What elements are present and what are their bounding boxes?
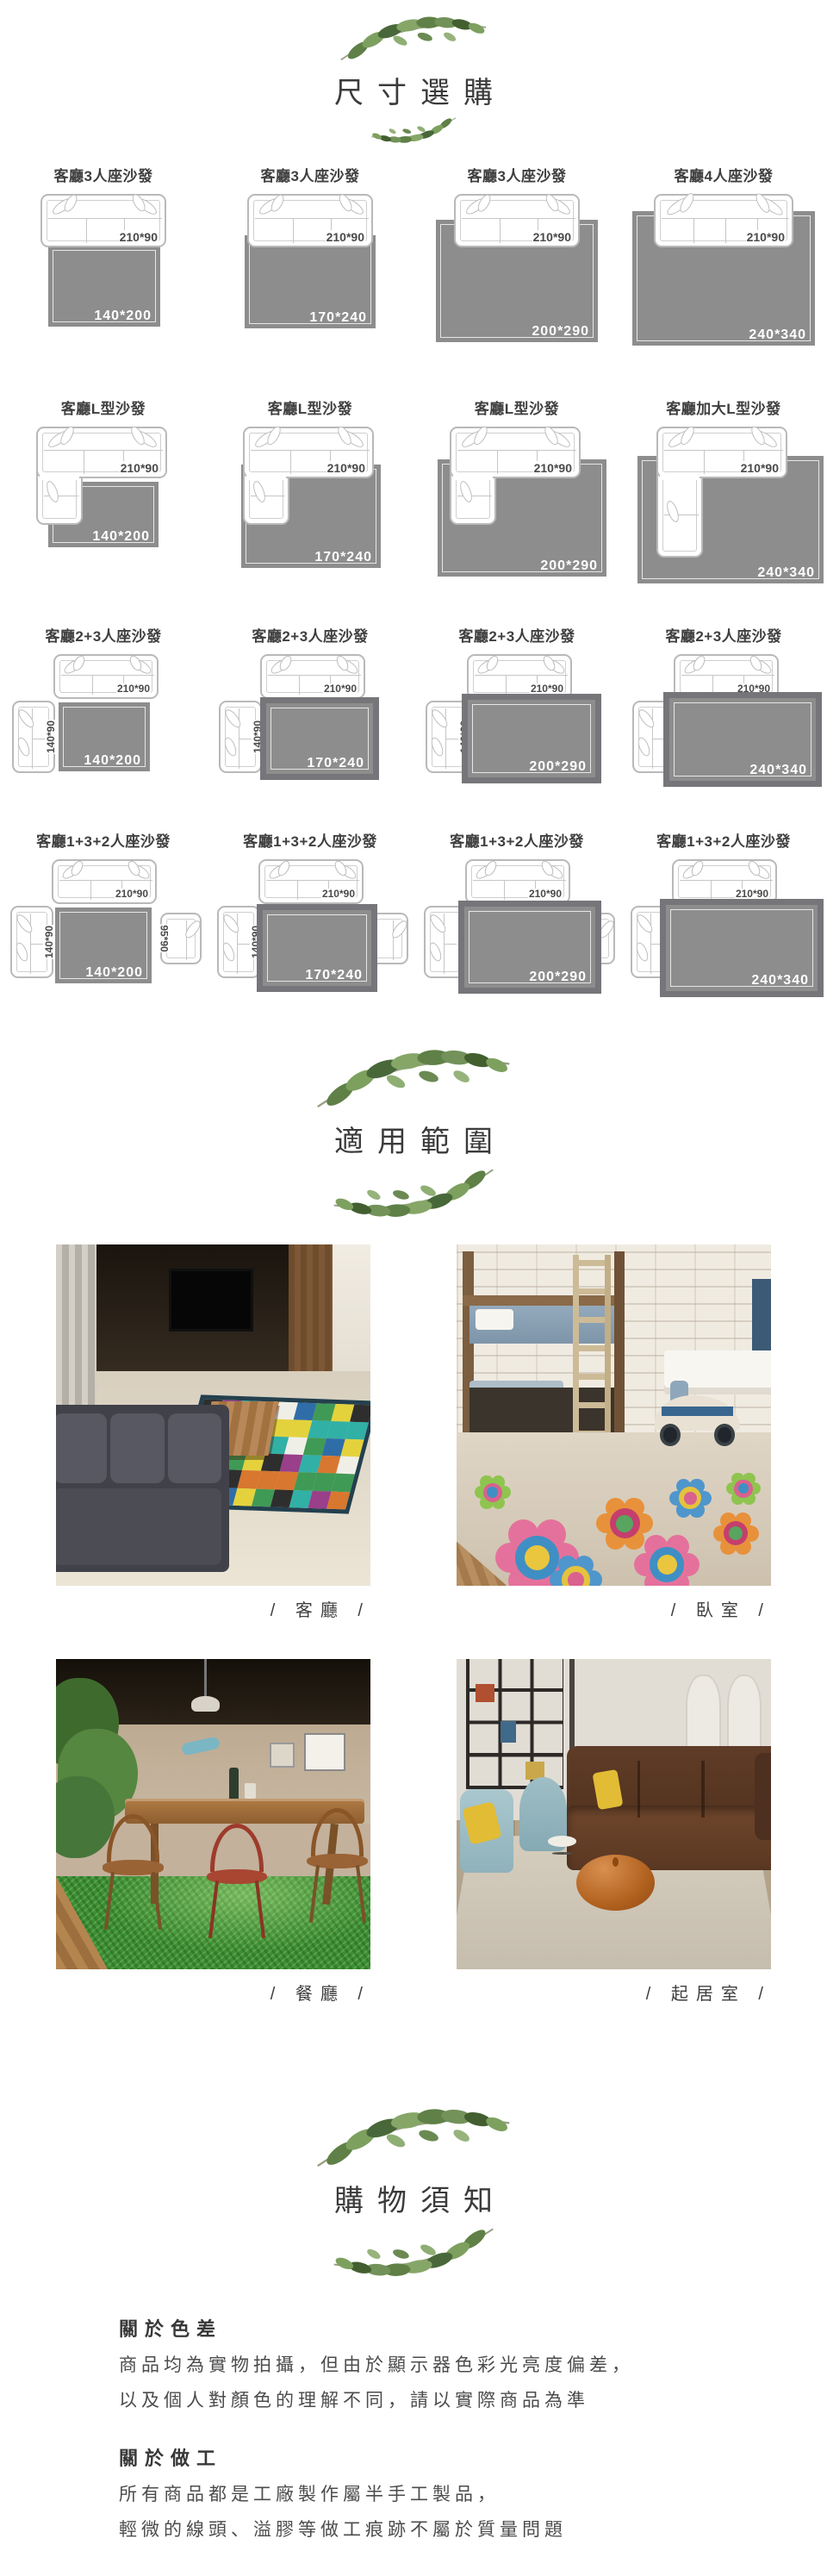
rug-size-label: 200*290 xyxy=(529,759,587,775)
photo-caption-living-room: / 客廳 / xyxy=(56,1596,370,1621)
diagram-canvas: 200*290210*90 xyxy=(413,427,620,587)
rug-size-label: 170*240 xyxy=(305,968,363,983)
sofa-top-view: 210*90 xyxy=(258,859,364,904)
size-diagram-cell: 客廳L型沙發170*240210*90 xyxy=(207,399,413,587)
sofa-top-view: 140*90 xyxy=(12,701,55,773)
rug-size-label: 240*340 xyxy=(751,973,809,989)
flower-motif xyxy=(714,1512,757,1555)
leaf-branch-icon xyxy=(311,1044,516,1114)
rug-top-view: 240*340 xyxy=(660,899,824,997)
photo-caption-dining-room: / 餐廳 / xyxy=(56,1980,370,2005)
sofa-size-label: 210*90 xyxy=(532,230,572,244)
leaf-branch-icon xyxy=(329,2223,498,2281)
rug-top-view: 240*340 xyxy=(663,692,822,787)
size-diagram-cell: 客廳2+3人座沙發200*290210*90140*90 xyxy=(413,627,620,789)
sofa-top-view: 210*90 xyxy=(654,194,793,247)
rug-size-label: 170*240 xyxy=(307,756,364,771)
lamp-cord xyxy=(204,1659,208,1700)
diagram-label: 客廳4人座沙發 xyxy=(620,166,827,187)
diagram-canvas: 170*240210*90 xyxy=(207,194,413,347)
flower-motif xyxy=(727,1472,760,1505)
photo-caption-bedroom: / 臥室 / xyxy=(457,1596,771,1621)
size-diagram-cell: 客廳1+3+2人座沙發170*240210*90140*9095*90 xyxy=(207,832,413,1001)
notice-line: 輕微的線頭、溢膠等做工痕跡不屬於質量問題 xyxy=(119,2513,749,2547)
rug-top-view: 200*290 xyxy=(458,901,601,994)
rug-top-view: 170*240 xyxy=(257,904,377,992)
size-diagram-cell: 客廳2+3人座沙發240*340210*90140*90 xyxy=(620,627,827,789)
notice-heading: 關於做工 xyxy=(119,2443,749,2471)
leaf-branch-icon xyxy=(336,12,491,65)
notice-section-title: 購物須知 xyxy=(320,2177,507,2219)
side-table xyxy=(548,1836,576,1847)
diagram-label: 客廳L型沙發 xyxy=(207,399,413,420)
sofa-top-view: 210*90 xyxy=(465,859,570,904)
sofa-size-label: 210*90 xyxy=(326,461,366,475)
sofa-size-label: 210*90 xyxy=(116,683,151,695)
diagram-label: 客廳2+3人座沙發 xyxy=(0,627,207,647)
rug-product-description-page: 尺寸選購 客廳3人座沙發140*200210*90客廳3人座沙發170*2402… xyxy=(0,0,827,2576)
rug-size-label: 200*290 xyxy=(540,558,598,574)
pouf-knot xyxy=(612,1857,619,1867)
usage-section-title: 適用範圍 xyxy=(320,1118,507,1160)
leaf-branch-icon xyxy=(369,115,458,146)
dining-room-photo xyxy=(56,1659,370,1969)
diagram-canvas: 140*200210*90140*90 xyxy=(0,654,207,789)
diagram-label: 客廳2+3人座沙發 xyxy=(207,627,413,647)
rug-size-label: 170*240 xyxy=(309,310,367,326)
usage-section-header: 適用範圍 xyxy=(0,1032,827,1222)
book xyxy=(501,1721,516,1743)
notice-heading: 關於色差 xyxy=(119,2314,749,2342)
rug-size-label: 200*290 xyxy=(532,324,589,340)
rug-size-label: 140*200 xyxy=(94,309,152,324)
diagram-canvas: 140*200210*90140*9095*90 xyxy=(0,859,207,1001)
sofa-top-view: 210*90 xyxy=(36,427,167,478)
size-diagram-cell: 客廳1+3+2人座沙發240*340210*90140*9095*90 xyxy=(620,832,827,1001)
diagram-label: 客廳2+3人座沙發 xyxy=(620,627,827,647)
diagram-canvas: 140*200210*90 xyxy=(0,427,207,587)
photo-cell-dining-room: / 餐廳 / xyxy=(56,1659,370,2018)
sofa-size-label: 95*90 xyxy=(159,924,171,952)
size-section-header: 尺寸選購 xyxy=(0,0,827,146)
rug-size-label: 140*200 xyxy=(85,965,143,981)
usage-photo-grid: / 客廳 / / 臥室 / xyxy=(0,1244,827,2018)
rug-size-label: 240*340 xyxy=(749,763,807,778)
glass xyxy=(245,1783,256,1799)
diagram-canvas: 170*240210*90 xyxy=(207,427,413,587)
diagram-label: 客廳L型沙發 xyxy=(0,399,207,420)
size-diagram-cell: 客廳1+3+2人座沙發200*290210*90140*9095*90 xyxy=(413,832,620,1001)
rug-top-view: 140*200 xyxy=(59,702,150,771)
bunk-bed-post xyxy=(614,1251,625,1456)
living-room-photo xyxy=(56,1244,370,1586)
leather-sofa xyxy=(567,1746,771,1870)
sofa-top-view: 210*90 xyxy=(247,194,373,247)
size-diagram-cell: 客廳2+3人座沙發140*200210*90140*90 xyxy=(0,627,207,789)
sofa-top-view: 210*90 xyxy=(467,654,572,699)
sofa-top-view: 210*90 xyxy=(672,859,777,904)
notice-line: 所有商品都是工廠製作屬半手工製品， xyxy=(119,2478,749,2511)
sofa-size-label: 210*90 xyxy=(533,461,573,475)
sofa-top-view: 210*90 xyxy=(450,427,581,478)
diagram-label: 客廳3人座沙發 xyxy=(413,166,620,187)
sofa-size-label: 210*90 xyxy=(326,230,365,244)
rug-size-label: 140*200 xyxy=(84,753,141,769)
size-diagram-cell: 客廳1+3+2人座沙發140*200210*90140*9095*90 xyxy=(0,832,207,1001)
tv-screen xyxy=(169,1269,252,1332)
size-diagram-cell: 客廳L型沙發140*200210*90 xyxy=(0,399,207,587)
rug-size-label: 240*340 xyxy=(749,327,806,343)
diagram-canvas: 170*240210*90140*9095*90 xyxy=(207,859,413,1001)
size-diagram-row: 客廳2+3人座沙發140*200210*90140*90客廳2+3人座沙發170… xyxy=(0,627,827,789)
bedroom-photo xyxy=(457,1244,771,1586)
rug-top-view: 170*240 xyxy=(260,697,379,780)
diagram-canvas: 200*290210*90140*90 xyxy=(413,654,620,789)
diagram-label: 客廳1+3+2人座沙發 xyxy=(620,832,827,852)
diagram-canvas: 170*240210*90140*90 xyxy=(207,654,413,789)
diagram-canvas: 240*340210*90140*9095*90 xyxy=(620,859,827,1001)
sofa-top-view: 210*90 xyxy=(656,427,787,478)
diagram-canvas: 240*340210*90140*90 xyxy=(620,654,827,789)
leaf-branch-icon xyxy=(311,2103,516,2174)
sofa-top-view: 95*90 xyxy=(160,913,202,964)
size-section-title: 尺寸選購 xyxy=(320,69,507,111)
notice-line: 以及個人對顏色的理解不同，請以實際商品為準 xyxy=(119,2384,749,2417)
diagram-canvas: 200*290210*90 xyxy=(413,194,620,347)
flower-motif xyxy=(636,1533,698,1586)
sofa-size-label: 140*90 xyxy=(43,925,55,959)
size-diagram-cell: 客廳3人座沙發170*240210*90 xyxy=(207,166,413,347)
sofa-top-view: 210*90 xyxy=(243,427,374,478)
diagram-label: 客廳1+3+2人座沙發 xyxy=(0,832,207,852)
rug-top-view: 170*240 xyxy=(245,235,376,328)
notice-line: 商品均為實物拍攝，但由於顯示器色彩光亮度偏差， xyxy=(119,2348,749,2382)
wall-picture xyxy=(304,1733,345,1770)
book xyxy=(476,1684,494,1703)
sofa-size-label: 210*90 xyxy=(740,461,780,475)
flower-motif xyxy=(476,1475,510,1510)
sofa-top-view: 210*90 xyxy=(260,654,365,699)
flower-motif xyxy=(551,1555,601,1586)
bottle xyxy=(229,1768,239,1799)
rug-size-label: 140*200 xyxy=(92,529,150,545)
rug-top-view: 140*200 xyxy=(55,908,152,983)
size-diagram-cell: 客廳加大L型沙發240*340210*90 xyxy=(620,399,827,587)
sofa-top-view: 210*90 xyxy=(454,194,580,247)
lamp-shade xyxy=(191,1696,220,1712)
size-diagram-row: 客廳L型沙發140*200210*90客廳L型沙發170*240210*90客廳… xyxy=(0,399,827,587)
size-diagrams-grid: 客廳3人座沙發140*200210*90客廳3人座沙發170*240210*90… xyxy=(0,166,827,1001)
size-diagram-cell: 客廳4人座沙發240*340210*90 xyxy=(620,166,827,347)
diagram-label: 客廳1+3+2人座沙發 xyxy=(413,832,620,852)
diagram-label: 客廳3人座沙發 xyxy=(0,166,207,187)
sofa-size-label: 210*90 xyxy=(321,889,356,901)
toy-car xyxy=(655,1381,740,1445)
size-diagram-cell: 客廳2+3人座沙發170*240210*90140*90 xyxy=(207,627,413,789)
sofa-size-label: 210*90 xyxy=(323,683,358,695)
size-diagram-cell: 客廳L型沙發200*290210*90 xyxy=(413,399,620,587)
sofa-size-label: 210*90 xyxy=(528,889,563,901)
leaf-branch-icon xyxy=(329,1163,498,1222)
sofa-top-view: 140*90 xyxy=(10,906,53,978)
flower-rug xyxy=(457,1432,771,1586)
notice-body: 關於色差商品均為實物拍攝，但由於顯示器色彩光亮度偏差，以及個人對顏色的理解不同，… xyxy=(0,2283,827,2576)
photo-caption-sitting-room: / 起居室 / xyxy=(457,1980,771,2005)
rug-size-label: 200*290 xyxy=(529,970,587,985)
red-chair xyxy=(204,1824,270,1938)
pillow xyxy=(476,1309,513,1330)
wood-panel xyxy=(289,1244,333,1371)
wooden-chair xyxy=(100,1814,166,1929)
size-diagram-row: 客廳3人座沙發140*200210*90客廳3人座沙發170*240210*90… xyxy=(0,166,827,347)
diagram-label: 客廳3人座沙發 xyxy=(207,166,413,187)
sofa-size-label: 210*90 xyxy=(746,230,786,244)
flower-motif xyxy=(670,1478,710,1518)
sofa-top-view: 210*90 xyxy=(40,194,166,247)
diagram-label: 客廳加大L型沙發 xyxy=(620,399,827,420)
wooden-chair xyxy=(304,1808,370,1923)
sofa-top-view: 140*90 xyxy=(217,906,260,978)
rug-size-label: 170*240 xyxy=(314,550,372,565)
diagram-canvas: 240*340210*90 xyxy=(620,427,827,587)
sofa-size-label: 210*90 xyxy=(120,461,159,475)
size-diagram-row: 客廳1+3+2人座沙發140*200210*90140*9095*90客廳1+3… xyxy=(0,832,827,1001)
photo-cell-bedroom: / 臥室 / xyxy=(457,1244,771,1635)
diagram-label: 客廳1+3+2人座沙發 xyxy=(207,832,413,852)
sofa-size-label: 140*90 xyxy=(45,720,57,754)
gray-sofa xyxy=(56,1405,229,1572)
notice-section-header: 購物須知 xyxy=(0,2091,827,2281)
rug-top-view: 200*290 xyxy=(462,694,601,783)
sofa-top-view: 210*90 xyxy=(53,654,159,699)
wall-picture xyxy=(270,1743,295,1768)
diagram-label: 客廳L型沙發 xyxy=(413,399,620,420)
diagram-label: 客廳2+3人座沙發 xyxy=(413,627,620,647)
photo-cell-sitting-room: / 起居室 / xyxy=(457,1659,771,2018)
bunk-bed-ladder xyxy=(573,1255,611,1460)
rug-top-view: 140*200 xyxy=(48,246,160,327)
diagram-canvas: 240*340210*90 xyxy=(620,194,827,347)
rug-size-label: 240*340 xyxy=(757,565,815,581)
sofa-size-label: 210*90 xyxy=(115,889,149,901)
diagram-canvas: 200*290210*90140*9095*90 xyxy=(413,859,620,1001)
photo-cell-living-room: / 客廳 / xyxy=(56,1244,370,1635)
sofa-top-view: 210*90 xyxy=(52,859,157,904)
sofa-top-view: 140*90 xyxy=(219,701,262,773)
sitting-room-photo xyxy=(457,1659,771,1969)
size-diagram-cell: 客廳3人座沙發200*290210*90 xyxy=(413,166,620,347)
sofa-size-label: 210*90 xyxy=(119,230,159,244)
size-diagram-cell: 客廳3人座沙發140*200210*90 xyxy=(0,166,207,347)
diagram-canvas: 140*200210*90 xyxy=(0,194,207,347)
